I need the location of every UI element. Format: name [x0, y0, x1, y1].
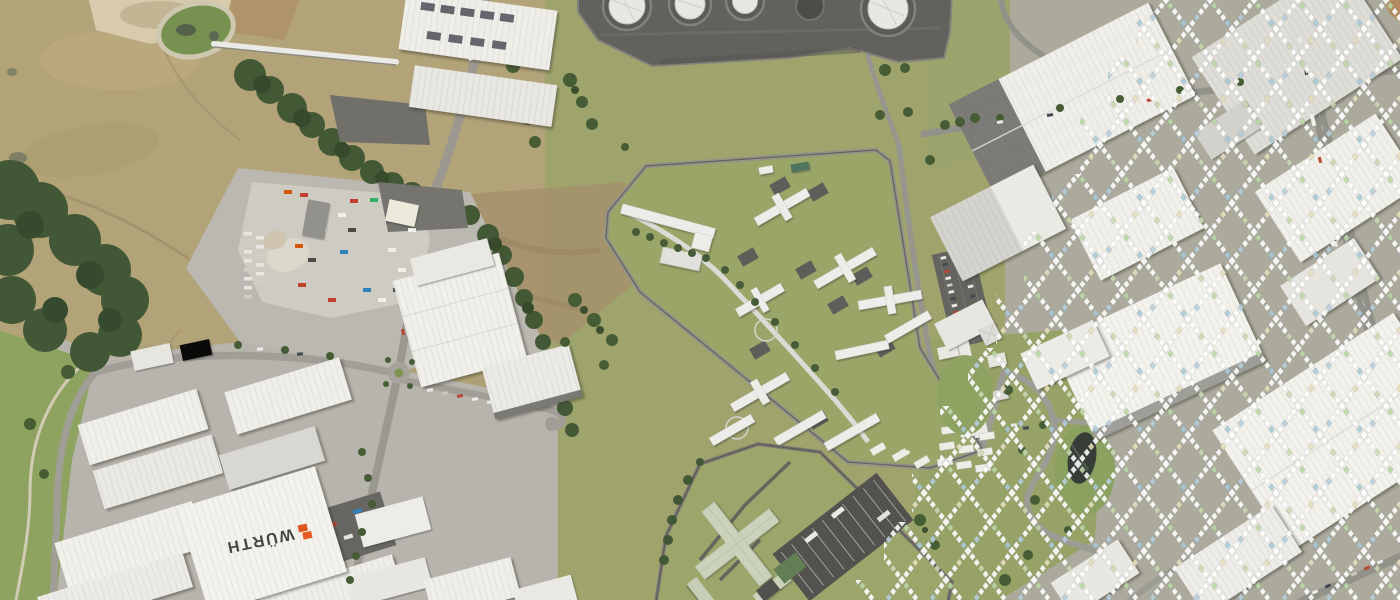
satellite-map-canvas[interactable]: WÜRTH: [0, 0, 1400, 600]
